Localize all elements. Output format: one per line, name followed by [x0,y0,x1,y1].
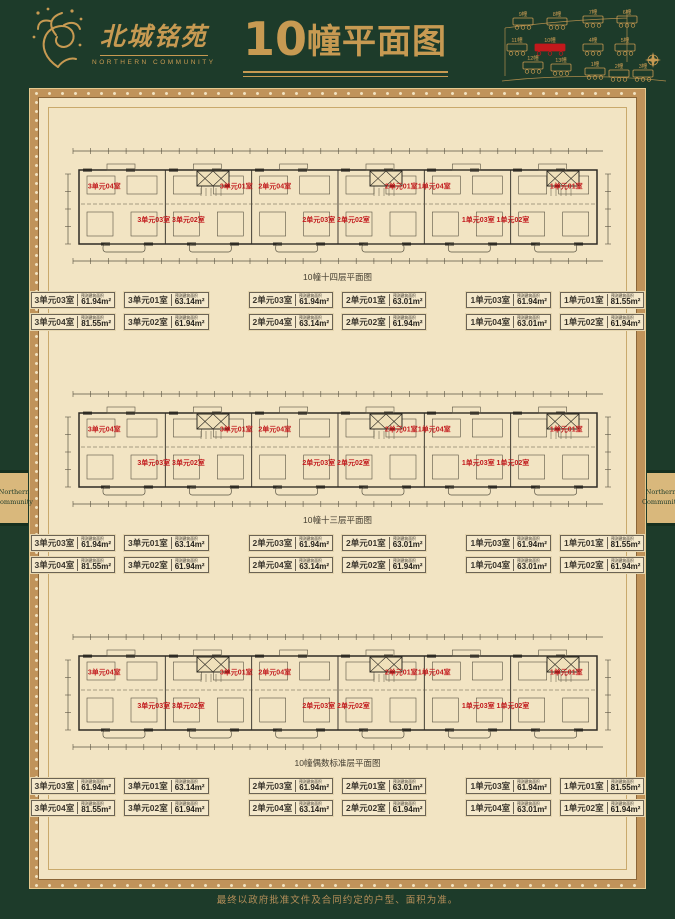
legend-item: 1单元04室预测建筑面积63.01m² [466,800,550,816]
legend-item: 1单元02室预测建筑面积61.94m² [560,800,644,816]
site-building [585,68,605,75]
unit-label: 2单元02室 [337,215,370,224]
legend-area-value: 61.94m² [175,563,205,571]
poster-page: 3单元04室3单元03室3单元02室3单元01室2单元04室2单元03室2单元0… [29,88,646,889]
site-building-label: 1幢 [591,60,600,68]
unit-label: 3单元01室 [219,668,252,677]
legend-area-note: 预测建筑面积 [81,802,104,806]
legend-unit-label: 1单元04室 [470,559,514,571]
legend-area: 预测建筑面积61.94m² [175,802,205,814]
side-tab-right: Northern Community [647,470,675,526]
legend-item: 2单元01室预测建筑面积63.01m² [342,535,426,551]
legend-area-value: 63.14m² [175,298,205,306]
site-building-scallop [619,24,623,28]
legend-area-value: 61.94m² [611,806,641,814]
unit-label: 2单元01室 [384,425,417,434]
legend-area-note: 预测建筑面积 [393,780,416,784]
legend-item: 3单元01室预测建筑面积63.14m² [124,778,208,794]
legend-area-value: 63.01m² [517,563,547,571]
legend-area: 预测建筑面积63.14m² [175,294,205,306]
side-tab-line: Community [0,498,33,508]
legend-area-value: 61.94m² [611,563,641,571]
legend-unit-label: 1单元04室 [470,316,514,328]
legend-area-note: 预测建筑面积 [393,802,416,806]
site-building-scallop [585,52,589,56]
site-building-scallop [617,52,621,56]
site-building-label: 9幢 [519,10,528,18]
legend-item: 2单元01室预测建筑面积63.01m² [342,292,426,308]
legend-area: 预测建筑面积63.01m² [517,802,547,814]
site-building-scallop [623,52,627,56]
legend-group: 2单元03室预测建筑面积61.94m²2单元01室预测建筑面积63.01m²2单… [249,292,427,330]
legend-area-value: 63.14m² [299,320,329,328]
site-map: 9幢8幢7幢6幢11幢10幢4幢5幢12幢13幢1幢2幢3幢 [499,2,669,86]
legend-area: 预测建筑面积81.55m² [81,802,111,814]
page-content: 3单元04室3单元03室3单元02室3单元01室2单元04室2单元03室2单元0… [48,107,627,870]
unit-label: 2单元02室 [337,701,370,710]
legend-area-note: 预测建筑面积 [81,559,104,563]
site-building [609,70,629,77]
unit-label: 2单元03室 [302,458,335,467]
legend-unit-label: 2单元02室 [346,559,390,571]
legend-area: 预测建筑面积61.94m² [81,780,111,792]
site-building-scallop [509,52,513,56]
legend-unit-label: 1单元03室 [470,294,514,306]
logo: 北城铭苑 NORTHERN COMMUNITY [28,5,216,77]
unit-label: 1单元04室 [417,182,450,191]
page-inner-border: 3单元04室3单元03室3单元02室3单元01室2单元04室2单元03室2单元0… [38,97,637,880]
legend-group: 2单元03室预测建筑面积61.94m²2单元01室预测建筑面积63.01m²2单… [249,778,427,816]
legend-area-note: 预测建筑面积 [175,559,198,563]
legend-area: 预测建筑面积61.94m² [299,537,329,549]
unit-label: 1单元04室 [417,425,450,434]
legend-area: 预测建筑面积61.94m² [81,294,111,306]
site-building [513,18,533,25]
legend-area-value: 63.01m² [393,784,423,792]
unit-label: 2单元01室 [384,668,417,677]
site-building-label: 8幢 [553,10,562,18]
legend-area-note: 预测建筑面积 [611,559,634,563]
legend-area-value: 61.94m² [299,298,329,306]
legend-area: 预测建筑面积61.94m² [611,316,641,328]
legend-area: 预测建筑面积61.94m² [81,537,111,549]
legend-area: 预测建筑面积63.01m² [393,294,423,306]
site-building-label: 13幢 [555,56,567,64]
legend-area-value: 61.94m² [393,806,423,814]
unit-label: 1单元03室 [461,458,494,467]
legend-area-value: 63.01m² [393,541,423,549]
legend-area-value: 61.94m² [299,784,329,792]
unit-label: 3单元01室 [219,182,252,191]
legend-area-note: 预测建筑面积 [611,802,634,806]
legend-area-value: 61.94m² [393,563,423,571]
disclaimer: 最终以政府批准文件及合同约定的户型、面积为准。 [0,892,675,906]
legend-unit-label: 2单元02室 [346,802,390,814]
site-building-label: 3幢 [639,62,648,70]
legend-area: 预测建筑面积61.94m² [299,780,329,792]
page-title: 10幢平面图 [200,12,490,77]
unit-label: 2单元01室 [384,182,417,191]
site-building-scallop [631,24,635,28]
legend-area: 预测建筑面积61.94m² [611,802,641,814]
legend-area-note: 预测建筑面积 [299,780,322,784]
legend-unit-label: 1单元04室 [470,802,514,814]
legend: 3单元03室预测建筑面积61.94m²3单元01室预测建筑面积63.14m²3单… [49,778,626,816]
legend-item: 3单元03室预测建筑面积61.94m² [31,778,115,794]
legend-item: 2单元03室预测建筑面积61.94m² [249,535,333,551]
legend-unit-label: 2单元01室 [346,294,390,306]
unit-label: 2单元04室 [258,425,291,434]
unit-label: 3单元04室 [87,182,120,191]
site-building-label: 10幢 [544,36,556,44]
site-building-scallop [559,52,563,56]
legend-area: 预测建筑面积63.01m² [393,780,423,792]
legend-unit-label: 1单元01室 [564,537,608,549]
legend-item: 1单元04室预测建筑面积63.01m² [466,557,550,573]
brand-subtitle: NORTHERN COMMUNITY [92,59,216,66]
legend-item: 2单元04室预测建筑面积63.14m² [249,800,333,816]
legend-item: 3单元01室预测建筑面积63.14m² [124,535,208,551]
legend-item: 3单元04室预测建筑面积81.55m² [31,800,115,816]
brand-name: 北城铭苑 [100,17,208,56]
legend-unit-label: 3单元03室 [35,780,79,792]
legend-area: 预测建筑面积61.94m² [393,802,423,814]
legend-area-note: 预测建筑面积 [393,559,416,563]
legend-area-value: 81.55m² [611,541,641,549]
site-building-scallop [591,24,595,28]
site-building [615,44,635,51]
unit-label: 3单元04室 [87,425,120,434]
unit-label: 2单元03室 [302,215,335,224]
unit-label: 2单元02室 [337,458,370,467]
legend-unit-label: 3单元04室 [35,316,79,328]
unit-label: 1单元02室 [496,215,529,224]
legend-area-value: 61.94m² [517,784,547,792]
legend-area-value: 81.55m² [611,298,641,306]
legend-group: 2单元03室预测建筑面积61.94m²2单元01室预测建筑面积63.01m²2单… [249,535,427,573]
site-building [507,44,527,51]
legend-area: 预测建筑面积63.01m² [517,559,547,571]
plan-caption: 10幢十四层平面图 [49,271,626,283]
legend-unit-label: 2单元04室 [253,802,297,814]
legend-area-note: 预测建筑面积 [517,802,540,806]
side-tab-line: Northern [646,488,675,498]
legend-area-note: 预测建筑面积 [81,316,104,320]
unit-label: 1单元01室 [549,182,582,191]
legend-item: 3单元02室预测建筑面积61.94m² [124,314,208,330]
legend-group: 3单元03室预测建筑面积61.94m²3单元01室预测建筑面积63.14m²3单… [31,535,209,573]
legend-unit-label: 3单元01室 [128,537,172,549]
legend-area-value: 81.55m² [81,320,111,328]
legend-area-value: 61.94m² [517,541,547,549]
unit-label: 1单元01室 [549,668,582,677]
legend-unit-label: 3单元01室 [128,294,172,306]
title-number: 10 [243,12,307,66]
unit-label: 1单元02室 [496,701,529,710]
floor-section-14f: 3单元04室3单元03室3单元02室3单元01室2单元04室2单元03室2单元0… [49,144,626,330]
legend-area-note: 预测建筑面积 [393,294,416,298]
legend-item: 1单元03室预测建筑面积61.94m² [466,292,550,308]
legend-area-value: 61.94m² [299,541,329,549]
legend-unit-label: 2单元01室 [346,537,390,549]
legend-area-note: 预测建筑面积 [81,780,104,784]
site-building-scallop [611,78,615,82]
site-building-scallop [531,70,535,74]
site-building-scallop [641,78,645,82]
legend-unit-label: 3单元02室 [128,316,172,328]
unit-label: 1单元03室 [461,701,494,710]
legend-unit-label: 3单元04室 [35,559,79,571]
unit-label: 1单元04室 [417,668,450,677]
compass-needle [645,52,661,68]
unit-label: 3单元02室 [172,215,205,224]
legend-group: 1单元03室预测建筑面积61.94m²1单元01室预测建筑面积81.55m²1单… [466,535,644,573]
legend-unit-label: 1单元01室 [564,294,608,306]
legend-area-value: 81.55m² [81,806,111,814]
legend-area: 预测建筑面积81.55m² [611,537,641,549]
legend-unit-label: 1单元02室 [564,802,608,814]
legend-area-note: 预测建筑面积 [175,294,198,298]
floor-plan-drawing-13f: 3单元04室3单元03室3单元02室3单元01室2单元04室2单元03室2单元0… [60,387,616,511]
side-tab-left: Northern Community [0,470,28,526]
legend-area: 预测建筑面积61.94m² [517,294,547,306]
legend-unit-label: 2单元01室 [346,780,390,792]
legend-area-note: 预测建筑面积 [81,537,104,541]
legend-area-note: 预测建筑面积 [517,316,540,320]
legend-area: 预测建筑面积61.94m² [175,316,205,328]
plan-caption: 10幢十三层平面图 [49,514,626,526]
legend-unit-label: 2单元03室 [253,537,297,549]
unit-label: 3单元02室 [172,458,205,467]
legend-area-value: 61.94m² [175,806,205,814]
legend-area-note: 预测建筑面积 [299,559,322,563]
legend-area-value: 61.94m² [81,784,111,792]
legend-item: 2单元04室预测建筑面积63.14m² [249,314,333,330]
legend-area-note: 预测建筑面积 [175,537,198,541]
legend-group: 3单元03室预测建筑面积61.94m²3单元01室预测建筑面积63.14m²3单… [31,292,209,330]
site-building [583,44,603,51]
legend-item: 1单元02室预测建筑面积61.94m² [560,557,644,573]
legend-unit-label: 1单元03室 [470,537,514,549]
legend-area-note: 预测建筑面积 [611,294,634,298]
site-building-scallop [515,52,519,56]
site-building [551,64,571,71]
legend-item: 1单元02室预测建筑面积61.94m² [560,314,644,330]
unit-label: 1单元02室 [496,458,529,467]
legend-item: 3单元01室预测建筑面积63.14m² [124,292,208,308]
site-building-scallop [599,76,603,80]
legend-unit-label: 2单元03室 [253,780,297,792]
legend-area-note: 预测建筑面积 [299,294,322,298]
legend-unit-label: 1单元01室 [564,780,608,792]
legend-area-note: 预测建筑面积 [517,559,540,563]
legend-area-note: 预测建筑面积 [611,780,634,784]
site-building-scallop [537,52,541,56]
legend-item: 1单元01室预测建筑面积81.55m² [560,292,644,308]
legend-area-value: 63.01m² [393,298,423,306]
header: 北城铭苑 NORTHERN COMMUNITY 10幢平面图 9幢8幢7幢6幢1… [0,0,675,88]
site-building-scallop [525,70,529,74]
legend-group: 1单元03室预测建筑面积61.94m²1单元01室预测建筑面积81.55m²1单… [466,778,644,816]
legend-unit-label: 3单元02室 [128,559,172,571]
site-building-scallop [617,78,621,82]
legend-area-value: 81.55m² [81,563,111,571]
site-building-scallop [527,26,531,30]
legend-item: 2单元02室预测建筑面积61.94m² [342,800,426,816]
legend-area: 预测建筑面积81.55m² [611,780,641,792]
legend-item: 3单元04室预测建筑面积81.55m² [31,557,115,573]
legend-area: 预测建筑面积63.14m² [175,537,205,549]
site-building-scallop [585,24,589,28]
site-building-label: 11幢 [511,36,523,44]
legend-area-value: 61.94m² [81,541,111,549]
legend-area-note: 预测建筑面积 [611,316,634,320]
legend-area-note: 预测建筑面积 [517,780,540,784]
legend-unit-label: 1单元02室 [564,316,608,328]
unit-label: 3单元04室 [87,668,120,677]
legend-area-note: 预测建筑面积 [393,537,416,541]
unit-label: 1单元03室 [461,215,494,224]
legend-item: 3单元02室预测建筑面积61.94m² [124,557,208,573]
legend-item: 3单元03室预测建筑面积61.94m² [31,535,115,551]
unit-label: 2单元04室 [258,668,291,677]
side-tab-line: Community [642,498,675,508]
legend-area-note: 预测建筑面积 [175,316,198,320]
site-building-label: 2幢 [615,62,624,70]
legend-area-note: 预测建筑面积 [299,537,322,541]
legend-area-value: 63.14m² [175,784,205,792]
legend-item: 1单元01室预测建筑面积81.55m² [560,778,644,794]
legend-unit-label: 3单元01室 [128,780,172,792]
legend-area-note: 预测建筑面积 [175,780,198,784]
site-building-label: 12幢 [527,54,539,62]
legend-area-note: 预测建筑面积 [517,294,540,298]
legend: 3单元03室预测建筑面积61.94m²3单元01室预测建筑面积63.14m²3单… [49,535,626,573]
side-tab-line: Northern [0,488,29,498]
unit-label: 2单元03室 [302,701,335,710]
legend-area-value: 61.94m² [517,298,547,306]
legend-area-value: 63.01m² [517,806,547,814]
unit-label: 3单元01室 [219,425,252,434]
legend-area: 预测建筑面积61.94m² [517,537,547,549]
legend-unit-label: 3单元03室 [35,537,79,549]
legend-area-note: 预测建筑面积 [611,537,634,541]
unit-label: 3单元02室 [172,701,205,710]
legend-group: 3单元03室预测建筑面积61.94m²3单元01室预测建筑面积63.14m²3单… [31,778,209,816]
legend-area-value: 63.01m² [517,320,547,328]
legend-item: 2单元01室预测建筑面积63.01m² [342,778,426,794]
unit-label: 1单元01室 [549,425,582,434]
legend-unit-label: 2单元02室 [346,316,390,328]
legend-area: 预测建筑面积81.55m² [81,316,111,328]
legend-item: 3单元03室预测建筑面积61.94m² [31,292,115,308]
legend-item: 3单元04室预测建筑面积81.55m² [31,314,115,330]
legend-area-value: 61.94m² [393,320,423,328]
floor-section-even-standard: 3单元04室3单元03室3单元02室3单元01室2单元04室2单元03室2单元0… [49,630,626,816]
legend-unit-label: 2单元03室 [253,294,297,306]
site-building-scallop [555,26,559,30]
legend-item: 1单元04室预测建筑面积63.01m² [466,314,550,330]
site-building-scallop [549,26,553,30]
legend-item: 2单元02室预测建筑面积61.94m² [342,314,426,330]
site-building-highlight [535,44,565,51]
legend-area: 预测建筑面积63.01m² [517,316,547,328]
title-underline [243,71,448,73]
legend-area: 预测建筑面积63.14m² [175,780,205,792]
legend-item: 1单元03室预测建筑面积61.94m² [466,535,550,551]
floor-plan-drawing-even: 3单元04室3单元03室3单元02室3单元01室2单元04室2单元03室2单元0… [60,630,616,754]
legend-area: 预测建筑面积61.94m² [299,294,329,306]
legend-area: 预测建筑面积63.14m² [299,559,329,571]
site-building-scallop [565,72,569,76]
unit-label: 3单元03室 [137,701,170,710]
site-building-scallop [597,52,601,56]
site-building-scallop [553,72,557,76]
legend-area: 预测建筑面积61.94m² [517,780,547,792]
legend-unit-label: 3单元02室 [128,802,172,814]
legend-area: 预测建筑面积63.01m² [393,537,423,549]
site-building [523,62,543,69]
legend-unit-label: 1单元03室 [470,780,514,792]
site-building-label: 7幢 [589,8,598,16]
floor-section-13f: 3单元04室3单元03室3单元02室3单元01室2单元04室2单元03室2单元0… [49,387,626,573]
legend-area: 预测建筑面积61.94m² [175,559,205,571]
legend-area: 预测建筑面积81.55m² [81,559,111,571]
legend-group: 1单元03室预测建筑面积61.94m²1单元01室预测建筑面积81.55m²1单… [466,292,644,330]
site-building [633,70,653,77]
site-building-scallop [559,72,563,76]
legend-area: 预测建筑面积81.55m² [611,294,641,306]
site-building-scallop [597,24,601,28]
legend-area-note: 预测建筑面积 [393,316,416,320]
legend-unit-label: 2单元04室 [253,559,297,571]
legend-area-value: 63.14m² [299,563,329,571]
legend-area-note: 预测建筑面积 [299,802,322,806]
legend-area-value: 63.14m² [175,541,205,549]
site-building-scallop [537,70,541,74]
legend-area-note: 预测建筑面积 [175,802,198,806]
legend-unit-label: 1单元02室 [564,559,608,571]
site-building-scallop [561,26,565,30]
legend-unit-label: 3单元04室 [35,802,79,814]
floor-plan-drawing-14f: 3单元04室3单元03室3单元02室3单元01室2单元04室2单元03室2单元0… [60,144,616,268]
site-building-label: 4幢 [589,36,598,44]
legend-item: 2单元02室预测建筑面积61.94m² [342,557,426,573]
legend-item: 2单元03室预测建筑面积61.94m² [249,292,333,308]
legend-area-note: 预测建筑面积 [517,537,540,541]
legend-area-value: 81.55m² [611,784,641,792]
unit-label: 2单元04室 [258,182,291,191]
site-building-scallop [623,78,627,82]
title-underline-2 [243,76,448,77]
site-building-scallop [548,52,552,56]
site-building-scallop [591,52,595,56]
unit-label: 3单元03室 [137,215,170,224]
legend-area-note: 预测建筑面积 [299,316,322,320]
legend-area-value: 61.94m² [611,320,641,328]
legend-area: 预测建筑面积61.94m² [393,559,423,571]
legend-unit-label: 3单元03室 [35,294,79,306]
legend-area-value: 61.94m² [81,298,111,306]
site-building-scallop [521,26,525,30]
legend-item: 3单元02室预测建筑面积61.94m² [124,800,208,816]
legend: 3单元03室预测建筑面积61.94m²3单元01室预测建筑面积63.14m²3单… [49,292,626,330]
legend-item: 1单元01室预测建筑面积81.55m² [560,535,644,551]
legend-area-note: 预测建筑面积 [81,294,104,298]
site-building-label: 5幢 [621,36,630,44]
legend-area: 预测建筑面积61.94m² [393,316,423,328]
legend-item: 2单元03室预测建筑面积61.94m² [249,778,333,794]
